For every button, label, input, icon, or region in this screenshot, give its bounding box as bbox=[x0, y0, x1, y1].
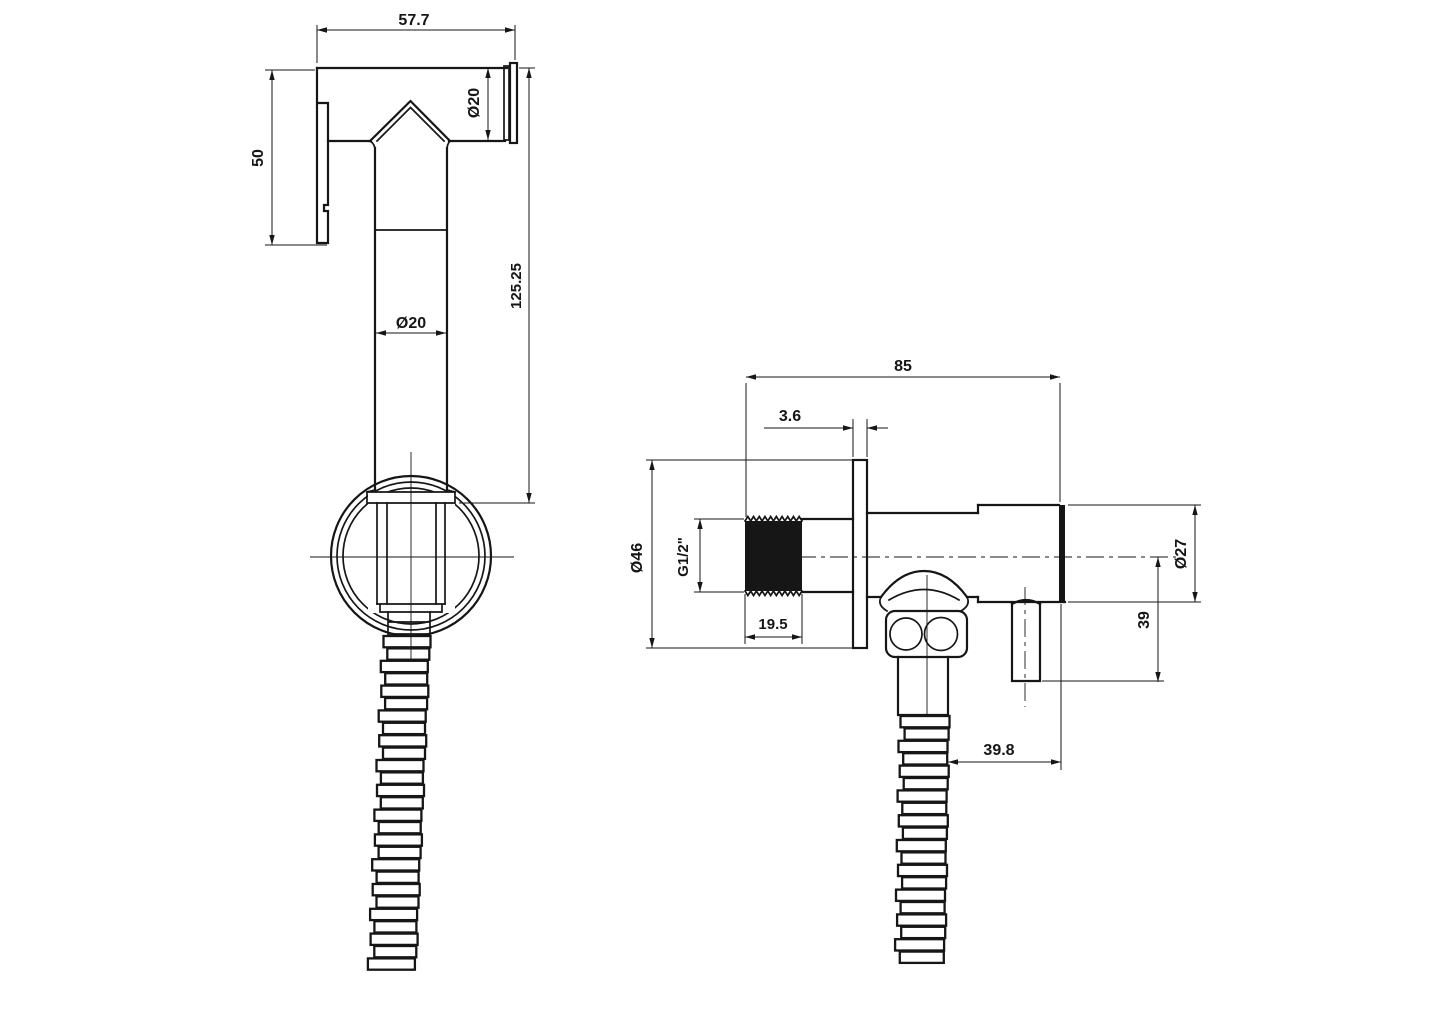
hose-rib bbox=[385, 698, 427, 709]
bonnet-dome-inner bbox=[889, 590, 959, 601]
hand-sprayer-view: 57.7 Ø20 50 125.25 Ø20 bbox=[250, 12, 535, 970]
dimension-arrowhead bbox=[526, 493, 531, 503]
hose-rib bbox=[374, 921, 416, 932]
dim-label-outlet-drop: 39 bbox=[1136, 611, 1153, 629]
hose-rib bbox=[377, 760, 424, 771]
hose-rib bbox=[371, 934, 418, 945]
hose-rib bbox=[896, 890, 945, 901]
dim-label-thread-size: G1/2" bbox=[675, 537, 692, 577]
dimension-arrowhead bbox=[697, 519, 702, 529]
hose-rib bbox=[373, 884, 420, 895]
sprayer-head bbox=[317, 63, 517, 243]
centerlines-right bbox=[798, 557, 1176, 714]
dimension-arrowhead bbox=[948, 759, 958, 764]
dim-label-thread-length: 19.5 bbox=[758, 616, 787, 633]
dimension-arrowhead bbox=[485, 68, 490, 78]
dimension-arrowhead bbox=[436, 330, 446, 335]
nozzle-outer-cap bbox=[510, 63, 517, 143]
hose-rib bbox=[377, 785, 424, 796]
knob-outline bbox=[978, 505, 1065, 602]
hose-rib bbox=[375, 834, 422, 845]
hose-rib bbox=[379, 735, 426, 746]
dimension-arrowhead bbox=[867, 425, 877, 430]
dim-head-length-lines bbox=[317, 25, 515, 63]
hose-rib bbox=[903, 828, 947, 839]
shower-hose-right bbox=[895, 716, 949, 963]
bonnet-flares bbox=[880, 597, 968, 611]
dim-label-knob-dia: Ø27 bbox=[1173, 539, 1190, 569]
hose-rib bbox=[381, 661, 428, 672]
hose-rib bbox=[374, 810, 421, 821]
hose-rib bbox=[898, 790, 947, 801]
valve-body bbox=[867, 505, 978, 602]
dimensions-right: 85 3.6 Ø46 G1/2" 19.5 Ø27 39 39.8 bbox=[629, 358, 1201, 770]
dimension-arrowhead bbox=[649, 460, 654, 470]
dimension-arrowhead bbox=[526, 68, 531, 78]
hose-ferrule bbox=[898, 657, 948, 715]
dimension-arrowhead bbox=[1050, 374, 1060, 379]
bonnet-dome-outer bbox=[881, 571, 967, 597]
hose-rib bbox=[383, 723, 425, 734]
hose-rib bbox=[902, 877, 946, 888]
dimension-arrowhead bbox=[485, 130, 490, 140]
dim-label-overall-length: 85 bbox=[894, 358, 912, 375]
dimension-arrowhead bbox=[745, 634, 755, 639]
dimension-arrowhead bbox=[269, 70, 274, 80]
hose-rib bbox=[383, 748, 425, 759]
thread-body bbox=[745, 521, 802, 591]
shower-hose-left bbox=[368, 636, 431, 970]
dimension-arrowhead bbox=[697, 582, 702, 592]
hose-rib bbox=[899, 815, 948, 826]
hose-rib bbox=[377, 872, 419, 883]
hose-rib bbox=[372, 859, 419, 870]
hose-rib bbox=[901, 902, 945, 913]
hose-rib bbox=[897, 914, 946, 925]
technical-drawing-sheet: 57.7 Ø20 50 125.25 Ø20 bbox=[0, 0, 1445, 1021]
dimension-arrowhead bbox=[317, 27, 327, 32]
dimension-arrowhead bbox=[505, 27, 515, 32]
drawing-canvas: 57.7 Ø20 50 125.25 Ø20 bbox=[0, 0, 1445, 1021]
valve-knob bbox=[978, 505, 1065, 602]
wall-flange bbox=[853, 460, 867, 648]
angle-valve-view: 85 3.6 Ø46 G1/2" 19.5 Ø27 39 39.8 bbox=[629, 358, 1201, 963]
hose-rib bbox=[900, 766, 949, 777]
hose-rib bbox=[903, 753, 947, 764]
hose-rib bbox=[905, 728, 949, 739]
dimension-arrowhead bbox=[269, 235, 274, 245]
hose-rib bbox=[899, 741, 948, 752]
hose-rib bbox=[377, 896, 419, 907]
hose-rib bbox=[379, 710, 426, 721]
dim-label-head-length: 57.7 bbox=[398, 12, 429, 29]
dimension-arrowhead bbox=[1192, 505, 1197, 515]
dimension-arrowhead bbox=[843, 425, 853, 430]
dim-label-flange-thickness: 3.6 bbox=[779, 408, 801, 425]
hose-rib bbox=[368, 958, 415, 969]
knob-end-face bbox=[1059, 505, 1065, 602]
nozzle-inner-cap bbox=[504, 66, 509, 140]
thread-crest-top bbox=[745, 517, 802, 522]
thread-crest-bottom bbox=[745, 591, 802, 596]
dimension-arrowhead bbox=[649, 638, 654, 648]
hose-rib bbox=[381, 772, 423, 783]
hose-rib bbox=[902, 803, 946, 814]
hose-rib bbox=[379, 822, 421, 833]
hose-rib bbox=[387, 648, 429, 659]
dimensions-left: 57.7 Ø20 50 125.25 Ø20 bbox=[250, 12, 535, 503]
dim-overall-length-lines bbox=[746, 377, 1060, 517]
cradle-mask bbox=[368, 492, 455, 613]
hose-rib bbox=[901, 927, 945, 938]
inlet-pipe bbox=[802, 519, 853, 592]
dimension-arrowhead bbox=[1192, 592, 1197, 602]
dimension-arrowhead bbox=[1051, 759, 1061, 764]
hose-rib bbox=[379, 847, 421, 858]
hose-union bbox=[880, 571, 968, 715]
outlet-body bbox=[1012, 604, 1040, 681]
dim-label-handle-length: 125.25 bbox=[508, 263, 525, 309]
dim-thread-size-lines bbox=[694, 519, 744, 592]
nut-facet-right bbox=[925, 618, 958, 651]
hose-rib bbox=[381, 797, 423, 808]
dimension-arrowhead bbox=[746, 374, 756, 379]
dim-label-flange-dia: Ø46 bbox=[629, 543, 646, 573]
threaded-inlet bbox=[745, 517, 853, 596]
hose-rib bbox=[385, 673, 427, 684]
hose-rib bbox=[370, 909, 417, 920]
hose-rib bbox=[381, 686, 428, 697]
dim-label-head-height: 50 bbox=[250, 149, 267, 167]
dim-label-nozzle-dia: Ø20 bbox=[466, 88, 483, 118]
dimension-arrowhead bbox=[792, 634, 802, 639]
hose-rib bbox=[384, 636, 431, 647]
dim-label-handle-dia: Ø20 bbox=[396, 315, 426, 332]
hose-rib bbox=[900, 952, 944, 963]
hose-rib bbox=[374, 946, 416, 957]
union-nut bbox=[886, 611, 967, 657]
head-back-plate bbox=[317, 68, 328, 243]
dimension-arrowhead bbox=[376, 330, 386, 335]
hose-rib bbox=[897, 840, 946, 851]
nut-facet-left bbox=[890, 618, 922, 650]
hose-rib bbox=[895, 939, 944, 950]
hose-rib bbox=[901, 716, 950, 727]
outlet-port bbox=[1012, 600, 1040, 681]
hose-rib bbox=[904, 778, 948, 789]
dimension-arrowhead bbox=[1155, 557, 1160, 567]
hose-rib bbox=[898, 865, 947, 876]
hose-rib bbox=[902, 852, 946, 863]
dim-label-hose-offset: 39.8 bbox=[983, 742, 1014, 759]
